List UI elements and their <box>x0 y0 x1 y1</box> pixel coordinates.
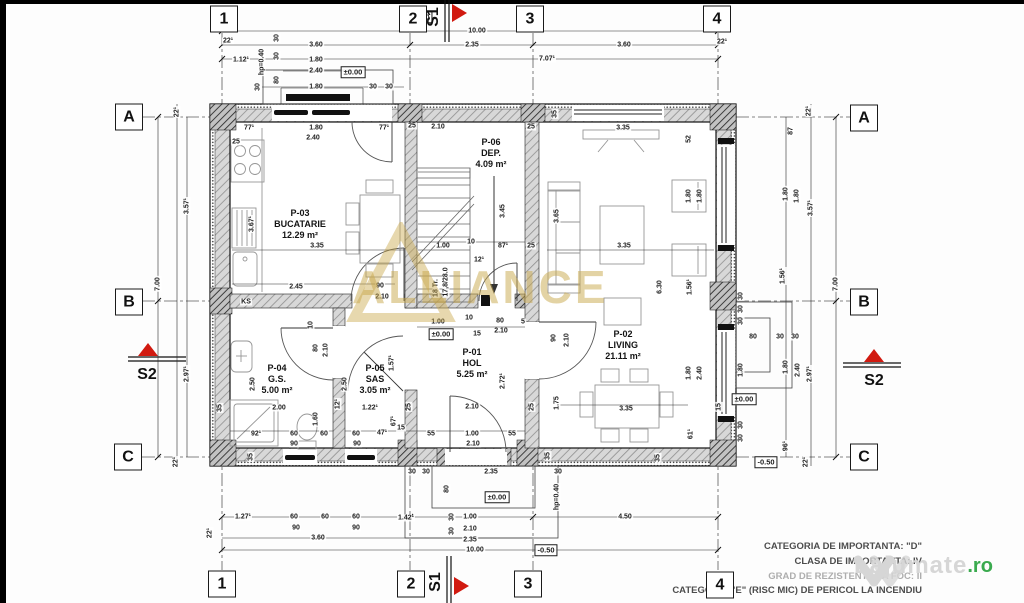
dimension-label: 1.00 <box>464 431 480 438</box>
dimension-label: 3.60 <box>616 42 632 49</box>
dimension-label: 2.10 <box>430 124 446 131</box>
dimension-label: 1.80 <box>783 359 790 375</box>
dimension-label: 96¹ <box>783 440 790 452</box>
dimension-label: 1.00 <box>435 243 451 250</box>
dimension-label: 87 <box>788 126 795 136</box>
dimension-label: 30 <box>738 420 745 430</box>
dimension-label: 15 <box>396 425 406 432</box>
dimension-label: 1.80 <box>794 188 801 204</box>
dimension-label: ±0.00 <box>485 491 510 503</box>
dimension-label: 80 <box>274 75 281 85</box>
dimension-label: 35 <box>545 451 552 461</box>
dimension-label: 30 <box>449 526 456 536</box>
note-line: CLASA DE IMPORTANTA: IV <box>502 555 922 570</box>
dimension-label: 3.35 <box>616 243 632 250</box>
dimension-label: 3.65 <box>554 208 561 224</box>
dimension-label: ±0.00 <box>341 66 366 78</box>
dimension-label: 30 <box>738 291 745 301</box>
dimension-label: 10 <box>464 315 474 322</box>
dimension-label: 22¹ <box>716 39 728 46</box>
dimension-label: 35 <box>655 453 662 463</box>
dimension-label: 1.80 <box>308 57 324 64</box>
dimension-label: hp=0.40 <box>554 483 561 511</box>
dimension-label: 3.57¹ <box>184 197 191 215</box>
dimension-label: 30 <box>384 84 394 91</box>
dimension-label: 10.00 <box>467 28 487 35</box>
dimension-label: ±0.00 <box>429 328 454 340</box>
dimension-label: 3.60 <box>308 42 324 49</box>
section-label-s2-left: S2 <box>137 366 157 384</box>
dimension-label: 1.75 <box>554 395 561 411</box>
room-label-dep: P-06DEP.4.09 m² <box>475 137 506 169</box>
dimension-label: 1.80 <box>686 188 693 204</box>
floor-plan-page: 1 2 3 4 1 2 3 4 A B C A B C S1 S1 S2 S2 … <box>0 0 1024 603</box>
dimension-label: 30 <box>738 304 745 314</box>
room-label-sas: P-05SAS3.05 m² <box>359 363 390 395</box>
dimension-label: 4.50 <box>617 514 633 521</box>
dimension-label: 1.22¹ <box>361 405 379 412</box>
dimension-label: 30 <box>368 84 378 91</box>
dimension-label: 22¹ <box>207 527 214 539</box>
dimension-label: 1.80 <box>697 188 704 204</box>
dimension-label: 80 <box>748 334 758 341</box>
dimension-label: 1.12¹ <box>232 57 250 64</box>
dimension-label: 3.60 <box>310 535 326 542</box>
dimension-label: 17,8/28.0 <box>443 266 450 297</box>
dimension-label: 1.00 <box>462 514 478 521</box>
dimension-label: 10 <box>308 320 315 330</box>
room-label-hol: P-01HOL5.25 m² <box>456 347 487 379</box>
dimension-label: 25 <box>231 139 241 146</box>
dimension-label: 7.00 <box>155 276 162 292</box>
dimension-label: 7.00 <box>833 276 840 292</box>
grid-bubble-3-top: 3 <box>516 6 544 33</box>
dimension-label: 2.97¹ <box>184 365 191 383</box>
dimension-label: 1.27¹ <box>234 514 252 521</box>
dimension-label: 90 <box>289 441 299 448</box>
grid-bubble-4-bottom: 4 <box>706 572 734 599</box>
dimension-label: 1.57¹ <box>389 354 396 372</box>
dimension-label: 3.45 <box>500 203 507 219</box>
room-label-living: P-02LIVING21.11 m² <box>605 329 641 361</box>
dimension-label: 80 <box>313 343 320 353</box>
room-label-bucatarie: P-03BUCATARIE12.29 m² <box>274 208 326 240</box>
dimension-label: 2.45 <box>288 284 304 291</box>
dimension-label: 60 <box>351 431 361 438</box>
dimension-label: 90 <box>352 441 362 448</box>
dimension-label: 30 <box>407 469 417 476</box>
dimension-label: 61¹ <box>688 428 695 440</box>
dimension-label: 22¹ <box>803 456 810 468</box>
dimension-label: 3.57¹ <box>808 199 815 217</box>
dimension-label: 2.00 <box>271 405 287 412</box>
dimension-label: 25 <box>406 402 413 412</box>
grid-bubble-a-left: A <box>115 104 143 131</box>
dimension-label: 1.56¹ <box>780 267 787 285</box>
dimension-label: 1.00 <box>430 319 446 326</box>
dimension-label: 35 <box>248 452 255 462</box>
dimension-label: 90 <box>351 525 361 532</box>
section-label-s1-top: S1 <box>425 7 443 27</box>
grid-bubble-b-left: B <box>115 289 143 316</box>
dimension-label: 1.80 <box>308 84 324 91</box>
dimension-label: 22¹ <box>173 456 180 468</box>
dimension-label: 92¹ <box>250 431 262 438</box>
dimension-label: 5 <box>520 319 526 326</box>
dimension-label: 25 <box>529 402 536 412</box>
dimension-label: 2.97¹ <box>807 365 814 383</box>
dimension-label: 6.30 <box>657 279 664 295</box>
dimension-label: 10.00 <box>465 547 485 554</box>
dimension-label: 2.10 <box>564 332 571 348</box>
dimension-label: 15 <box>472 331 482 338</box>
dimension-label: 2.10 <box>323 342 330 358</box>
dimension-label: 30 <box>449 512 456 522</box>
dimension-label: 1.80 <box>783 186 790 202</box>
dimension-label: 77¹ <box>378 125 390 132</box>
dimension-label: 25 <box>526 124 536 131</box>
dimension-label: 30 <box>775 334 785 341</box>
dimension-label: 30 <box>421 469 431 476</box>
grid-bubble-1-top: 1 <box>210 6 238 33</box>
dimension-label: 35 <box>552 109 559 119</box>
dimension-label: 2.10 <box>464 404 480 411</box>
dimension-label: 1.80 <box>308 125 324 132</box>
dimension-label: 2.35 <box>462 537 478 544</box>
dimension-label: 22¹ <box>806 105 813 117</box>
dimension-label: 3.35 <box>618 406 634 413</box>
room-label-gs: P-04G.S.5.00 m² <box>261 363 292 395</box>
grid-bubble-1-bottom: 1 <box>208 571 236 598</box>
dimension-label: -0.50 <box>534 544 557 556</box>
grid-bubble-2-bottom: 2 <box>397 571 425 598</box>
dimension-label: 22¹ <box>222 38 234 45</box>
grid-bubble-4-top: 4 <box>703 6 731 33</box>
dimension-label: 55 <box>507 431 517 438</box>
dimension-label: 30 <box>274 51 281 61</box>
section-label-s1-bottom: S1 <box>427 572 445 592</box>
dimension-label: -0.50 <box>754 456 777 468</box>
dimension-label: 1.80 <box>686 365 693 381</box>
dimension-label: 30 <box>553 469 563 476</box>
dimension-label: 30 <box>255 82 262 92</box>
dimension-label: 3.35 <box>615 125 631 132</box>
dimension-label: 2.10 <box>493 328 509 335</box>
grid-bubble-3-bottom: 3 <box>514 571 542 598</box>
dimension-label: 2.10 <box>374 294 390 301</box>
dimension-label: 2.72¹ <box>500 372 507 390</box>
dimension-label: 60 <box>289 431 299 438</box>
dimension-label: 90 <box>551 333 558 343</box>
dimension-label: 2.35 <box>464 42 480 49</box>
dimension-label: 7.07¹ <box>538 56 556 63</box>
dimension-label: 2.50 <box>342 376 349 392</box>
dimension-label: 60 <box>320 514 330 521</box>
dimension-label: 80 <box>495 318 505 325</box>
dimension-label: 1.56¹ <box>687 278 694 296</box>
dimension-label: 87¹ <box>497 243 509 250</box>
dimension-label: 90 <box>375 283 385 290</box>
dimension-label: 12¹ <box>335 398 342 410</box>
dimension-label: 22¹ <box>174 106 181 118</box>
dimension-label: 3.35 <box>309 243 325 250</box>
dimension-label: 60 <box>319 431 329 438</box>
dimension-label: 30 <box>738 433 745 443</box>
note-line: CATEGORIA DE IMPORTANTA: "D" <box>502 540 922 555</box>
section-label-s2-right: S2 <box>864 372 884 390</box>
dimension-label: 2.10 <box>462 526 478 533</box>
grid-bubble-b-right: B <box>850 289 878 316</box>
dimension-label: 18 Tr. <box>433 278 440 298</box>
dimension-label: 1.80 <box>738 362 745 378</box>
dimension-label: 2.40 <box>305 135 321 142</box>
dimension-label: 10 <box>466 239 476 246</box>
dimension-label: 2.40 <box>308 68 324 75</box>
dimension-label: ±0.00 <box>732 393 757 405</box>
dimension-label: 2.50 <box>250 376 257 392</box>
dimension-label: 2.40 <box>697 365 704 381</box>
dimension-label: KS <box>240 299 252 306</box>
dimension-label: 2.40 <box>795 362 802 378</box>
grid-bubble-c-left: C <box>114 444 142 471</box>
dimension-label: 12¹ <box>473 257 485 264</box>
dimension-label: 15 <box>716 402 723 412</box>
grid-bubble-a-right: A <box>850 105 878 132</box>
dimension-label: 60 <box>351 514 361 521</box>
dimension-label: 47¹ <box>376 430 388 437</box>
dimension-label: 30 <box>274 33 281 43</box>
dimension-label: 25 <box>526 243 536 250</box>
dimension-label: hp=0.40 <box>259 48 266 76</box>
dimension-label: 2.10 <box>465 441 481 448</box>
dimension-label: 52 <box>686 134 693 144</box>
dimension-label: 2.35 <box>483 469 499 476</box>
dimension-label: 30 <box>738 316 745 326</box>
dimension-label: 90 <box>291 525 301 532</box>
dimension-label: 35 <box>217 403 224 413</box>
dimension-label: 30 <box>790 334 800 341</box>
dimension-label: 1.60 <box>313 411 320 427</box>
dimension-label: 25 <box>407 123 417 130</box>
grid-bubble-2-top: 2 <box>399 6 427 33</box>
dimension-label: 60 <box>289 514 299 521</box>
dimension-label: 1.42¹ <box>397 515 415 522</box>
grid-bubble-c-right: C <box>850 444 878 471</box>
dimension-label: 77¹ <box>243 125 255 132</box>
dimension-label: 3.67¹ <box>249 215 256 233</box>
dimension-label: 55 <box>426 431 436 438</box>
dimension-label: 80 <box>444 484 451 494</box>
